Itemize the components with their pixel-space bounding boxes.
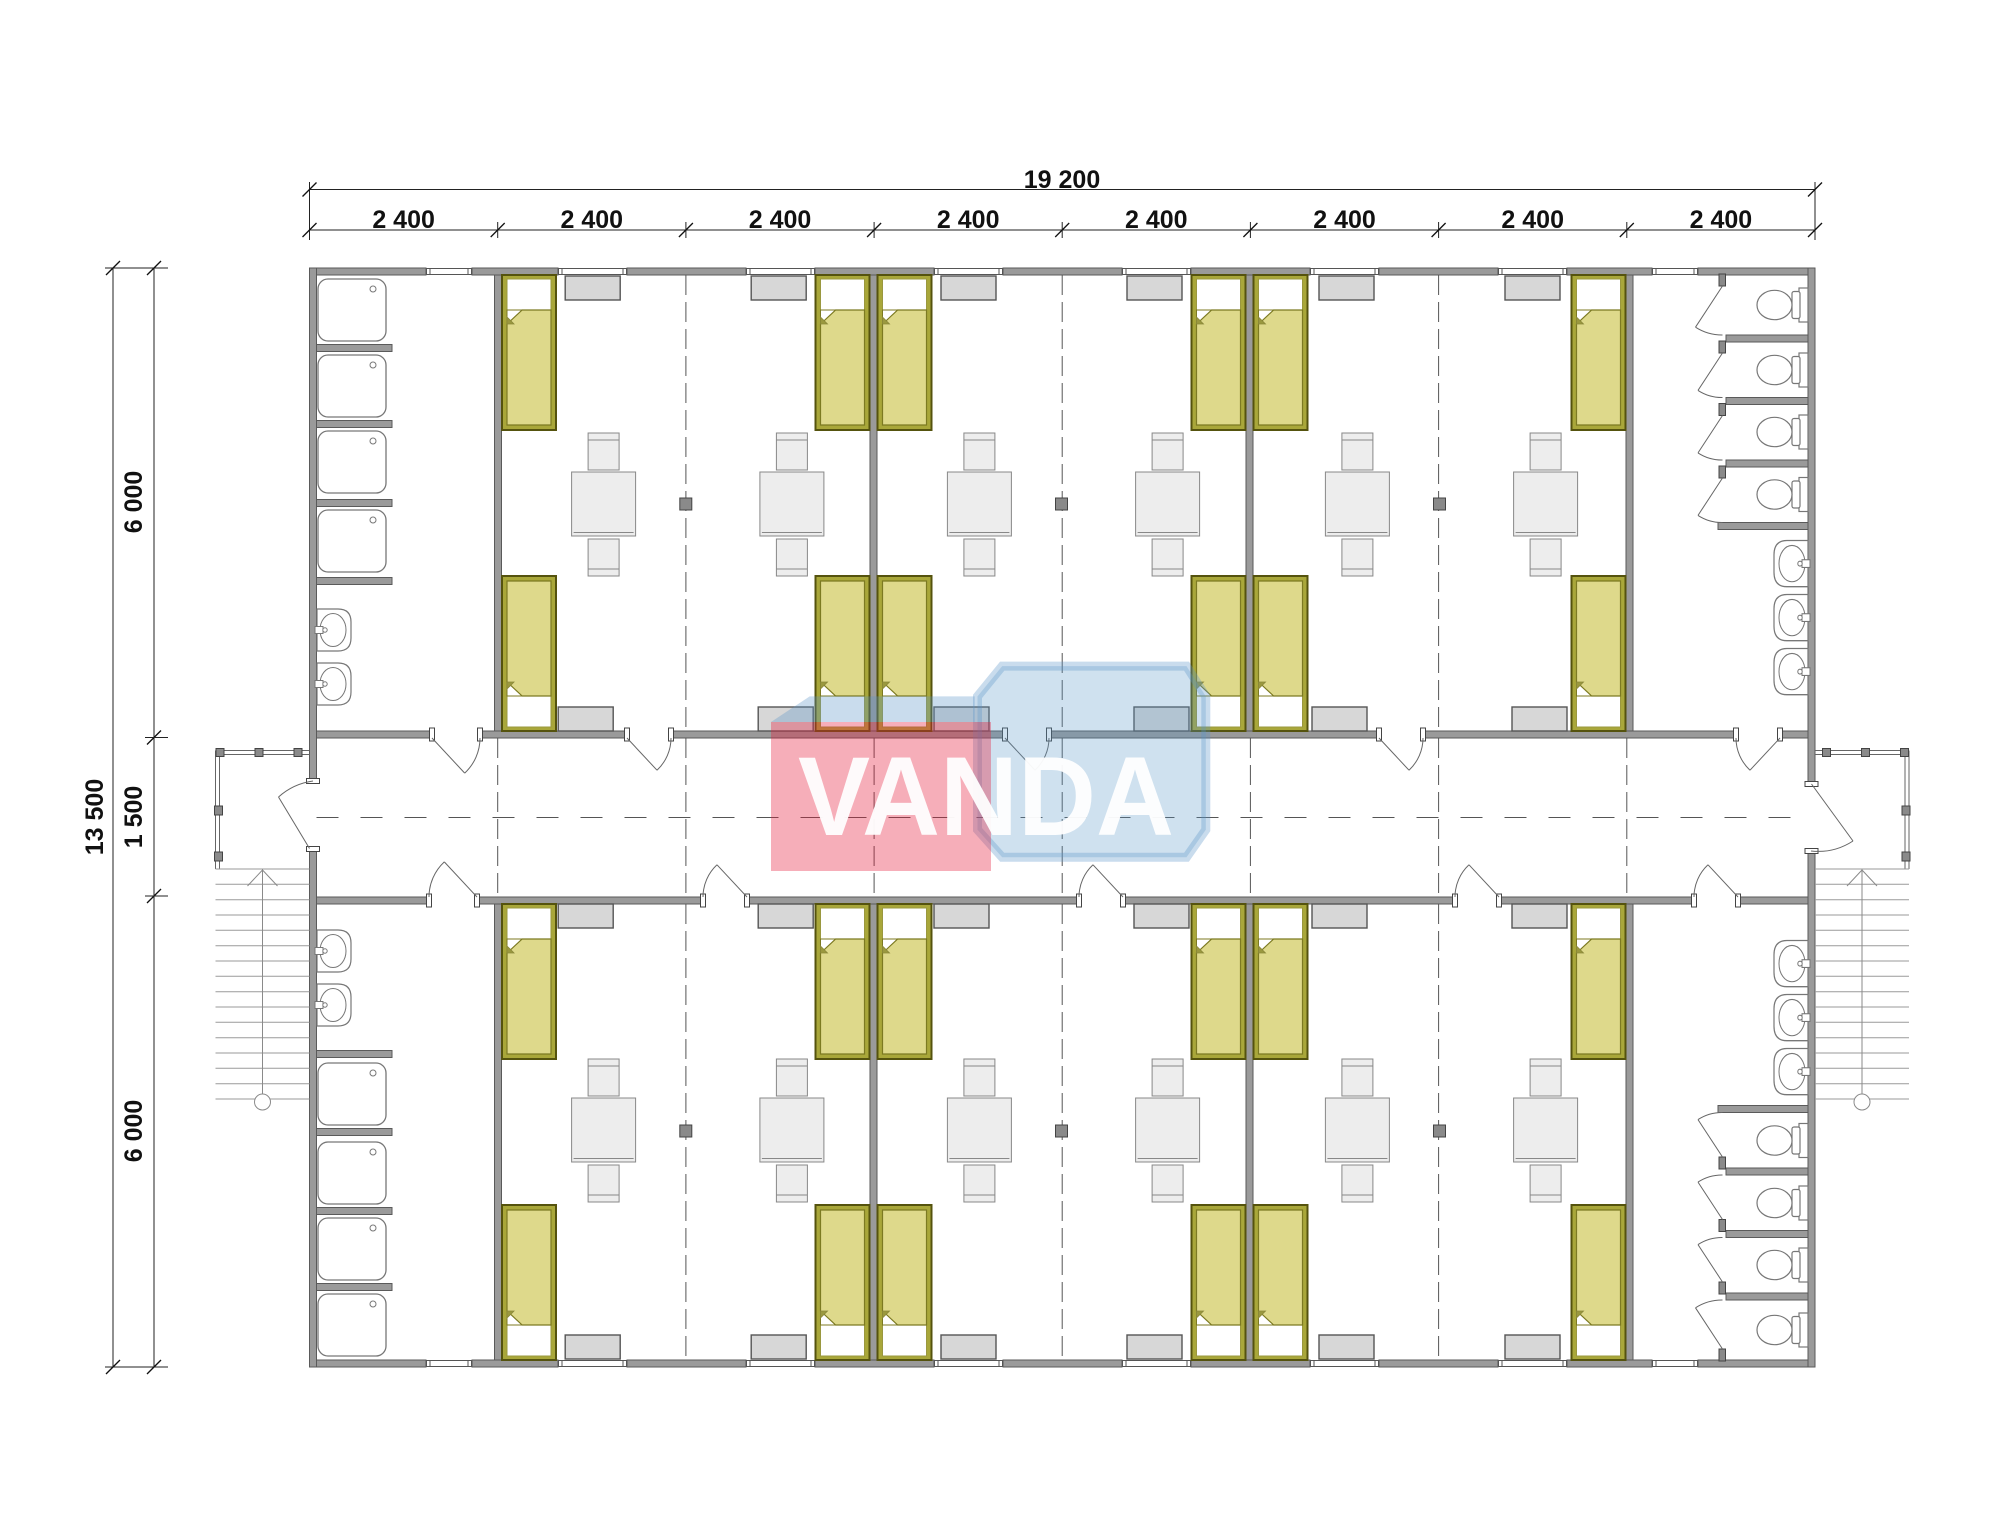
svg-text:19 200: 19 200 [1024,166,1100,194]
svg-text:2 400: 2 400 [1125,206,1188,234]
svg-text:2 400: 2 400 [1501,206,1564,234]
svg-text:2 400: 2 400 [749,206,812,234]
svg-text:6 000: 6 000 [120,471,148,534]
svg-text:1 500: 1 500 [120,786,148,849]
svg-text:6 000: 6 000 [120,1100,148,1163]
svg-text:13 500: 13 500 [81,779,109,855]
svg-text:2 400: 2 400 [1313,206,1376,234]
svg-text:2 400: 2 400 [1690,206,1753,234]
svg-text:2 400: 2 400 [937,206,1000,234]
svg-text:VANDA: VANDA [798,734,1174,859]
svg-text:2 400: 2 400 [561,206,624,234]
svg-text:2 400: 2 400 [372,206,435,234]
